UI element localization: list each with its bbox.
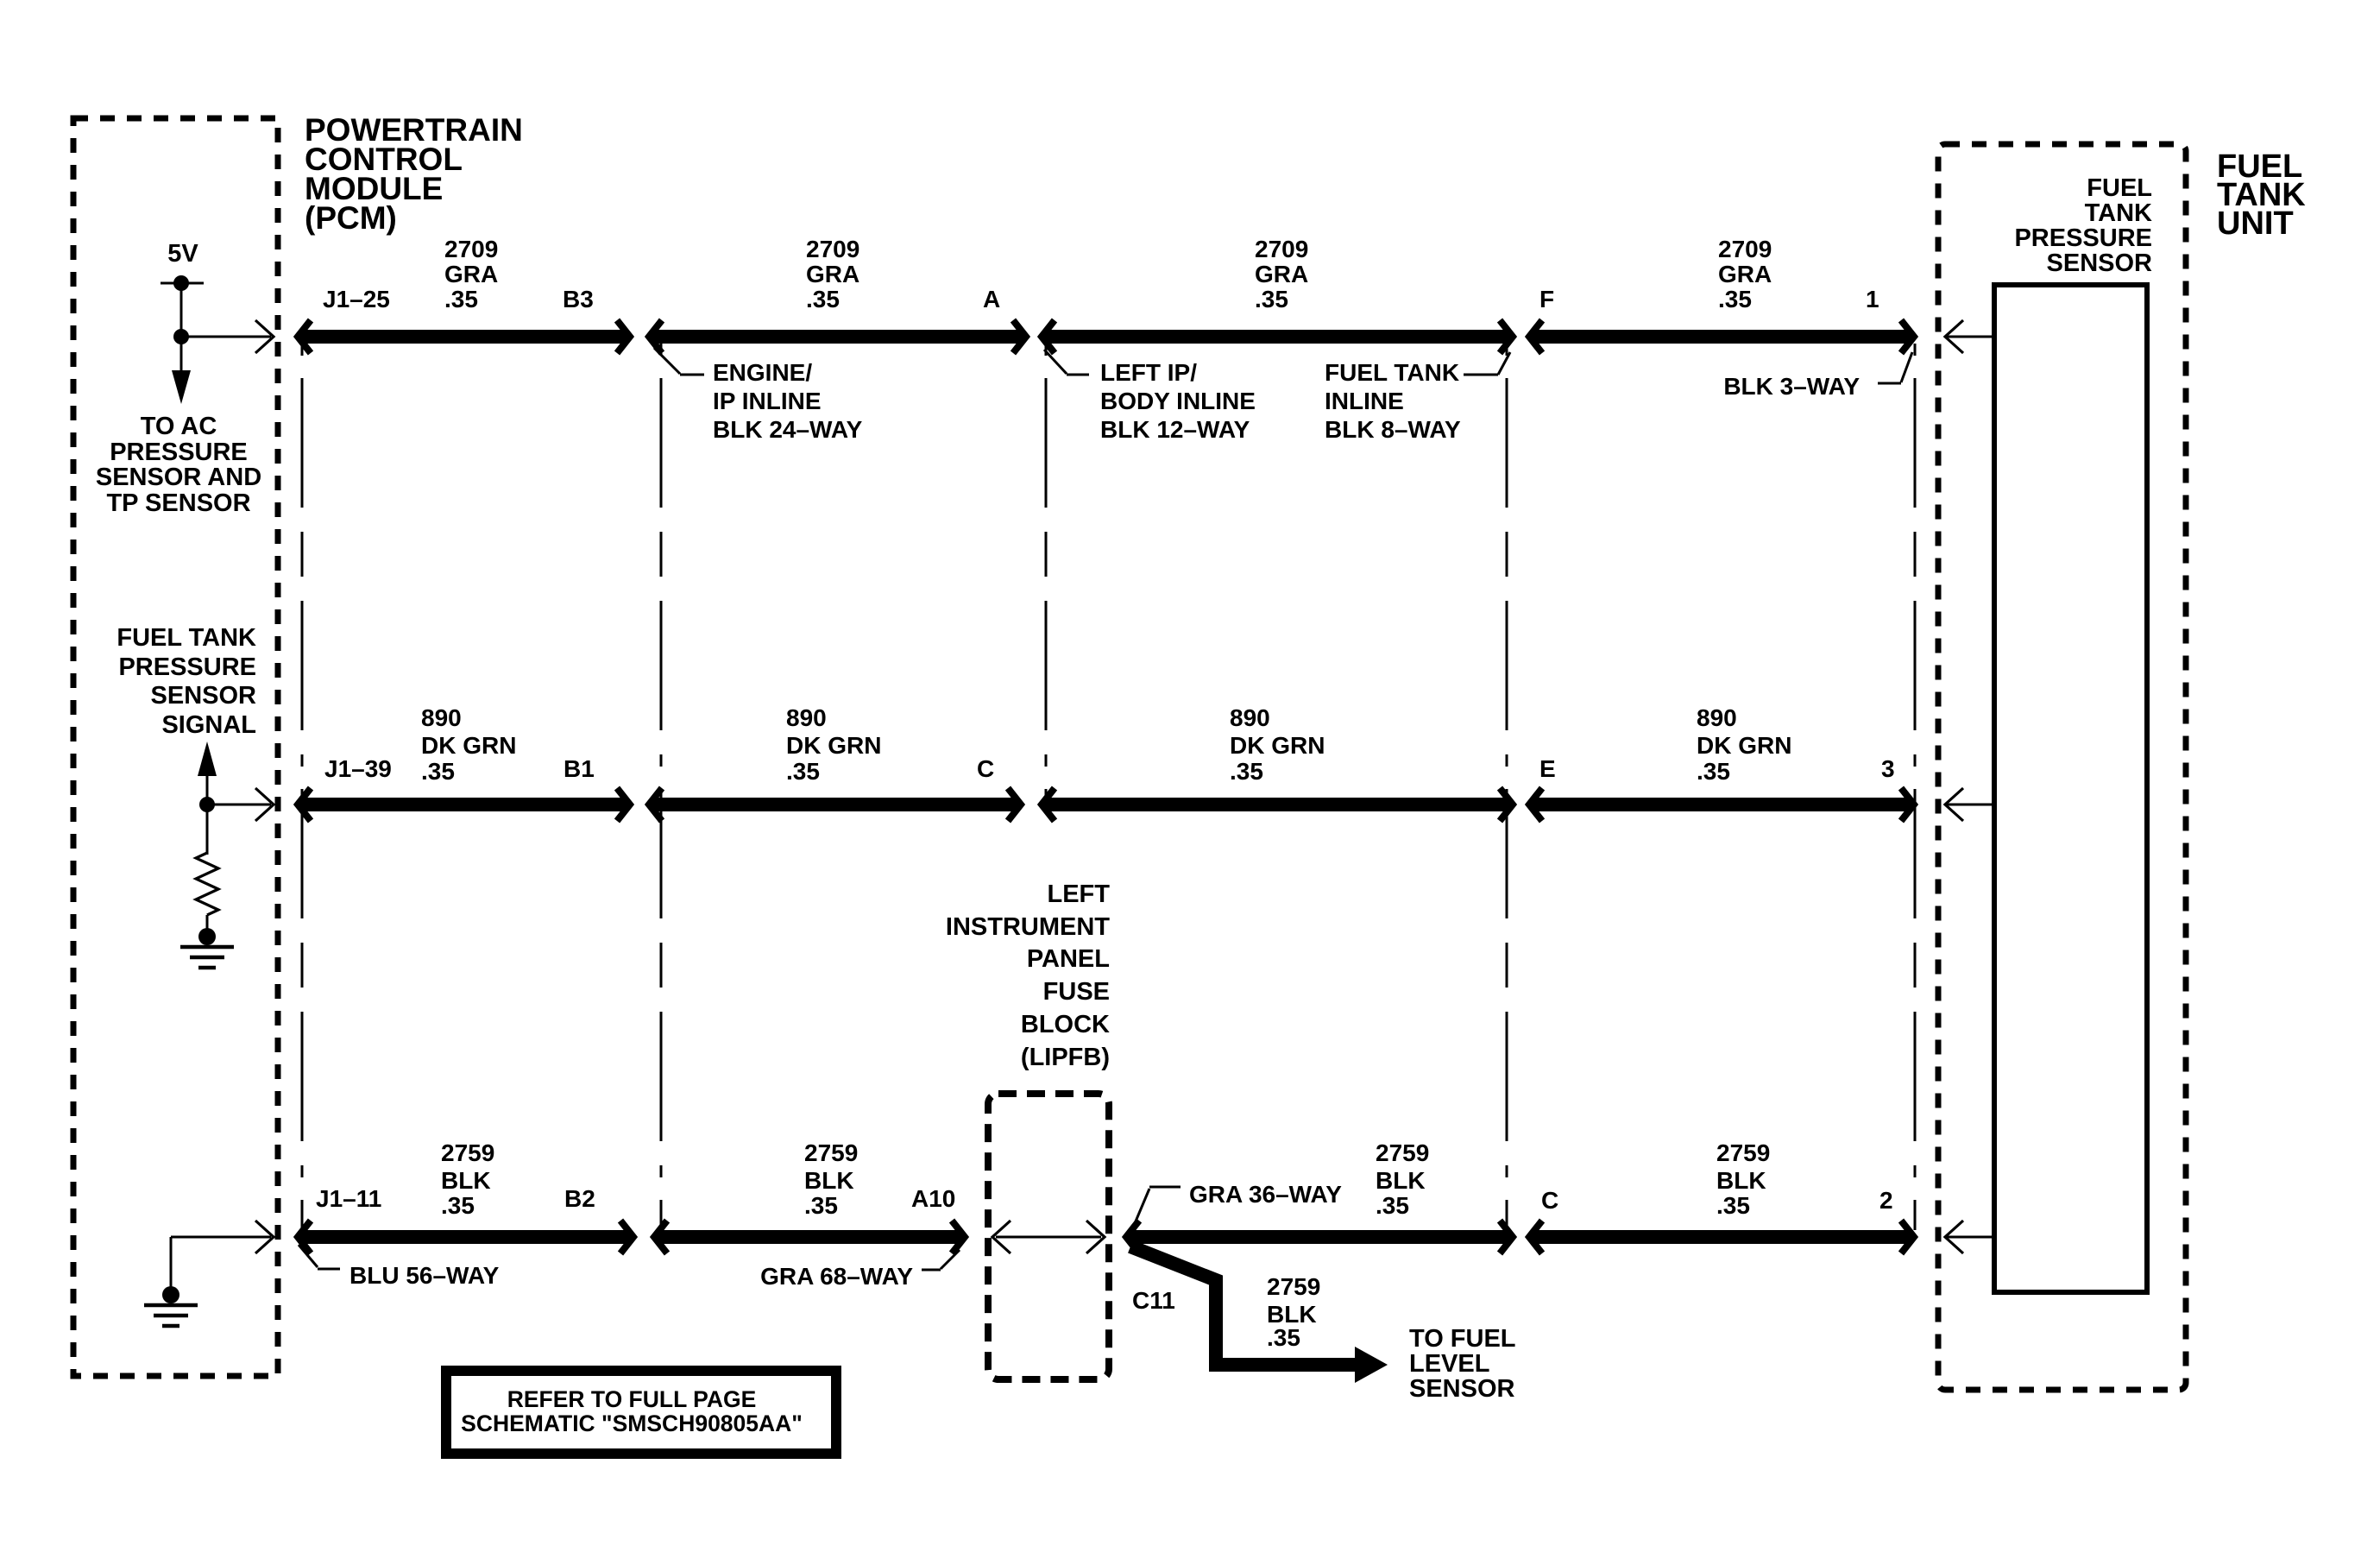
svg-text:BLK 12–WAY: BLK 12–WAY — [1100, 416, 1250, 443]
svg-text:1: 1 — [1866, 286, 1879, 312]
svg-text:GRA: GRA — [444, 261, 498, 287]
svg-text:2709: 2709 — [806, 236, 859, 262]
svg-text:GRA: GRA — [1718, 261, 1772, 287]
svg-text:FUSE: FUSE — [1043, 978, 1110, 1006]
svg-text:2759: 2759 — [1376, 1139, 1429, 1166]
svg-text:890: 890 — [1697, 704, 1737, 731]
svg-text:DK GRN: DK GRN — [421, 732, 516, 759]
svg-text:BLK 24–WAY: BLK 24–WAY — [713, 416, 863, 443]
svg-text:2709: 2709 — [444, 236, 498, 262]
svg-text:2759: 2759 — [1267, 1273, 1320, 1300]
svg-text:UNIT: UNIT — [2217, 205, 2294, 242]
svg-text:INLINE: INLINE — [1325, 388, 1404, 414]
svg-text:GRA: GRA — [806, 261, 859, 287]
svg-text:2759: 2759 — [1716, 1139, 1770, 1166]
svg-text:BLK: BLK — [804, 1167, 854, 1194]
svg-text:GRA 68–WAY: GRA 68–WAY — [760, 1263, 913, 1290]
svg-text:.35: .35 — [806, 286, 840, 312]
svg-text:.35: .35 — [444, 286, 478, 312]
svg-text:FUEL TANK: FUEL TANK — [116, 624, 256, 652]
svg-text:890: 890 — [1230, 704, 1270, 731]
svg-text:FUEL: FUEL — [2087, 174, 2152, 202]
svg-text:TP SENSOR: TP SENSOR — [106, 489, 250, 517]
svg-text:2709: 2709 — [1255, 236, 1308, 262]
svg-text:REFER TO FULL PAGE: REFER TO FULL PAGE — [507, 1386, 757, 1412]
svg-text:890: 890 — [421, 704, 462, 731]
svg-text:F: F — [1539, 286, 1554, 312]
svg-text:(PCM): (PCM) — [305, 200, 397, 236]
svg-text:J1–11: J1–11 — [316, 1185, 381, 1212]
svg-text:5V: 5V — [167, 240, 198, 268]
svg-text:.35: .35 — [421, 758, 455, 785]
svg-text:SIGNAL: SIGNAL — [161, 711, 256, 739]
svg-text:.35: .35 — [441, 1192, 475, 1219]
svg-text:TO FUEL: TO FUEL — [1409, 1325, 1516, 1353]
svg-text:GRA 36–WAY: GRA 36–WAY — [1189, 1181, 1342, 1208]
svg-text:PRESSURE: PRESSURE — [110, 439, 248, 466]
svg-text:.35: .35 — [804, 1192, 838, 1219]
svg-text:TO AC: TO AC — [141, 413, 217, 440]
svg-text:DK GRN: DK GRN — [786, 732, 881, 759]
svg-text:BODY INLINE: BODY INLINE — [1100, 388, 1256, 414]
svg-text:PRESSURE: PRESSURE — [118, 653, 256, 681]
svg-text:GRA: GRA — [1255, 261, 1308, 287]
svg-text:BLK: BLK — [441, 1167, 491, 1194]
svg-text:ENGINE/: ENGINE/ — [713, 359, 812, 386]
svg-text:J1–25: J1–25 — [323, 286, 390, 312]
svg-text:.35: .35 — [786, 758, 820, 785]
svg-text:BLK 3–WAY: BLK 3–WAY — [1723, 373, 1860, 400]
svg-text:FUEL TANK: FUEL TANK — [1325, 359, 1459, 386]
svg-text:B2: B2 — [564, 1185, 595, 1212]
svg-text:.35: .35 — [1376, 1192, 1409, 1219]
svg-text:BLK: BLK — [1716, 1167, 1766, 1194]
svg-text:SCHEMATIC "SMSCH90805AA": SCHEMATIC "SMSCH90805AA" — [461, 1410, 803, 1436]
svg-text:DK GRN: DK GRN — [1697, 732, 1791, 759]
svg-text:DK GRN: DK GRN — [1230, 732, 1325, 759]
svg-text:C: C — [1541, 1187, 1558, 1214]
svg-text:LEFT IP/: LEFT IP/ — [1100, 359, 1197, 386]
svg-text:SENSOR: SENSOR — [1409, 1375, 1515, 1403]
svg-text:.35: .35 — [1230, 758, 1263, 785]
svg-text:A: A — [983, 286, 1000, 312]
svg-text:INSTRUMENT: INSTRUMENT — [946, 913, 1110, 941]
svg-text:2759: 2759 — [441, 1139, 494, 1166]
svg-text:(LIPFB): (LIPFB) — [1021, 1044, 1110, 1071]
svg-text:2709: 2709 — [1718, 236, 1772, 262]
svg-text:BLOCK: BLOCK — [1021, 1011, 1110, 1038]
svg-text:E: E — [1539, 755, 1556, 782]
svg-text:BLK: BLK — [1376, 1167, 1426, 1194]
svg-text:BLK 8–WAY: BLK 8–WAY — [1325, 416, 1461, 443]
svg-text:2759: 2759 — [804, 1139, 858, 1166]
svg-text:3: 3 — [1881, 755, 1895, 782]
svg-text:2: 2 — [1879, 1187, 1893, 1214]
svg-text:.35: .35 — [1716, 1192, 1750, 1219]
svg-text:A10: A10 — [911, 1185, 955, 1212]
svg-text:SENSOR: SENSOR — [151, 682, 257, 710]
svg-text:SENSOR: SENSOR — [2047, 249, 2153, 277]
svg-text:B1: B1 — [564, 755, 595, 782]
svg-text:PANEL: PANEL — [1027, 945, 1110, 973]
svg-text:J1–39: J1–39 — [324, 755, 392, 782]
svg-text:890: 890 — [786, 704, 827, 731]
svg-text:C: C — [977, 755, 994, 782]
svg-text:.35: .35 — [1267, 1324, 1300, 1351]
svg-text:B3: B3 — [563, 286, 594, 312]
svg-text:.35: .35 — [1718, 286, 1752, 312]
svg-text:LEVEL: LEVEL — [1409, 1350, 1489, 1378]
svg-text:PRESSURE: PRESSURE — [2014, 224, 2152, 252]
svg-text:.35: .35 — [1697, 758, 1730, 785]
svg-text:IP INLINE: IP INLINE — [713, 388, 822, 414]
svg-text:.35: .35 — [1255, 286, 1288, 312]
svg-text:BLU 56–WAY: BLU 56–WAY — [349, 1262, 500, 1289]
svg-text:SENSOR AND: SENSOR AND — [96, 464, 261, 491]
svg-text:C11: C11 — [1132, 1287, 1175, 1314]
svg-text:TANK: TANK — [2085, 199, 2152, 227]
svg-text:LEFT: LEFT — [1048, 880, 1111, 908]
